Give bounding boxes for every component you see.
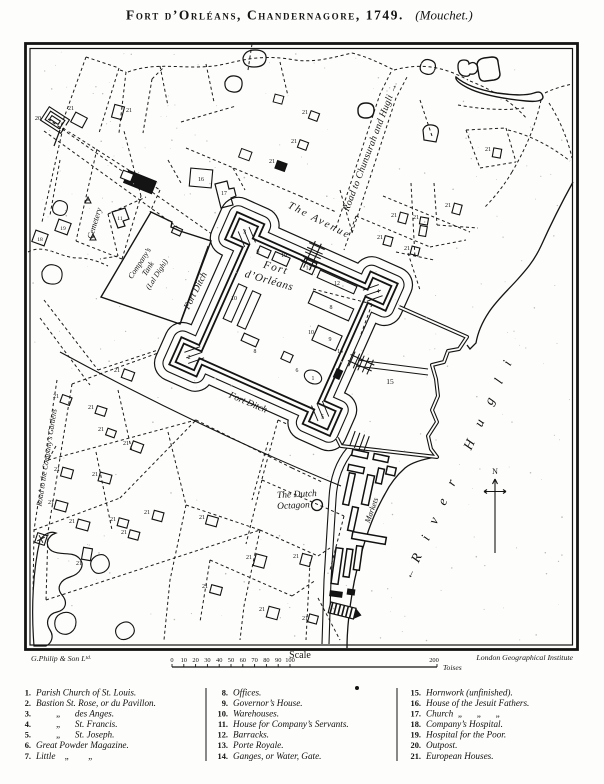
svg-text:21: 21: [246, 555, 252, 561]
svg-text:2: 2: [187, 355, 190, 361]
svg-text:21: 21: [377, 235, 383, 241]
svg-text:Ganges, or Water, Gate.: Ganges, or Water, Gate.: [233, 751, 321, 761]
svg-text:14: 14: [337, 349, 343, 355]
svg-text:European Houses.: European Houses.: [425, 751, 494, 761]
svg-text:G.Philip & Son Ltd.: G.Philip & Son Ltd.: [31, 654, 91, 663]
svg-text:20: 20: [192, 657, 198, 664]
svg-text:80: 80: [263, 657, 269, 664]
svg-text:9: 9: [329, 337, 332, 343]
svg-text:Governor’s House.: Governor’s House.: [233, 698, 303, 708]
svg-text:Great Powder Magazine.: Great Powder Magazine.: [36, 740, 129, 750]
svg-text:(Mouchet.): (Mouchet.): [415, 8, 472, 23]
svg-text:200: 200: [429, 657, 439, 664]
svg-text:15: 15: [386, 377, 394, 386]
svg-text:„ St. Francis.: „ St. Francis.: [56, 719, 118, 729]
svg-text:Toises: Toises: [443, 663, 462, 672]
svg-text:Offices.: Offices.: [233, 688, 261, 698]
svg-text:30: 30: [204, 657, 210, 664]
svg-text:4: 4: [377, 289, 380, 295]
svg-text:N: N: [492, 467, 498, 476]
svg-text:17.: 17.: [411, 710, 421, 719]
svg-text:13: 13: [306, 266, 312, 272]
svg-text:60: 60: [240, 657, 246, 664]
svg-text:1: 1: [312, 376, 315, 382]
svg-text:15.: 15.: [411, 689, 421, 698]
svg-text:20.: 20.: [411, 741, 421, 750]
svg-text:21: 21: [391, 213, 397, 219]
svg-text:12.: 12.: [218, 731, 228, 740]
svg-text:Church „ „ „: Church „ „ „: [426, 709, 501, 719]
svg-text:19.: 19.: [411, 731, 421, 740]
svg-text:21: 21: [269, 159, 275, 165]
svg-text:10: 10: [181, 657, 187, 664]
svg-text:„ St. Joseph.: „ St. Joseph.: [56, 730, 114, 740]
svg-text:House of the Jesuit Fathers.: House of the Jesuit Fathers.: [425, 698, 529, 708]
svg-text:11.: 11.: [218, 720, 228, 729]
svg-text:Company’s Hospital.: Company’s Hospital.: [426, 719, 503, 729]
svg-text:Porte Royale.: Porte Royale.: [232, 740, 284, 750]
svg-text:21: 21: [291, 139, 297, 145]
svg-text:18: 18: [37, 237, 43, 243]
svg-text:21: 21: [445, 203, 451, 209]
svg-text:8: 8: [254, 349, 257, 355]
svg-text:Octagon: Octagon: [277, 500, 310, 512]
svg-text:21: 21: [121, 530, 127, 536]
svg-text:6: 6: [257, 249, 260, 255]
svg-text:16.: 16.: [411, 699, 421, 708]
svg-text:7.: 7.: [25, 752, 31, 761]
svg-text:18.: 18.: [411, 720, 421, 729]
svg-text:100: 100: [285, 657, 295, 664]
svg-text:21: 21: [302, 616, 308, 622]
svg-text:Hospital for the Poor.: Hospital for the Poor.: [425, 730, 506, 740]
svg-text:40: 40: [216, 657, 222, 664]
svg-text:21: 21: [413, 215, 419, 221]
svg-text:90: 90: [275, 657, 281, 664]
svg-text:20: 20: [35, 115, 41, 122]
svg-text:Warehouses.: Warehouses.: [233, 709, 279, 719]
svg-text:13.: 13.: [218, 741, 228, 750]
svg-text:10: 10: [281, 253, 287, 259]
svg-text:2.: 2.: [25, 699, 31, 708]
svg-text:21: 21: [126, 108, 132, 114]
svg-text:9.: 9.: [222, 699, 228, 708]
svg-text:Outpost.: Outpost.: [426, 740, 457, 750]
svg-text:14.: 14.: [218, 752, 228, 761]
svg-text:21: 21: [76, 561, 82, 567]
svg-text:21: 21: [123, 441, 129, 447]
svg-text:12: 12: [334, 281, 340, 287]
svg-text:10: 10: [231, 296, 237, 302]
svg-text:Bastion St. Rose, or du Pavill: Bastion St. Rose, or du Pavillon.: [36, 698, 156, 708]
svg-text:21: 21: [68, 106, 74, 112]
svg-text:21: 21: [48, 500, 54, 506]
svg-text:Parish Church of St. Louis.: Parish Church of St. Louis.: [35, 688, 136, 698]
svg-text:70: 70: [251, 657, 257, 664]
svg-text:„ des Anges.: „ des Anges.: [56, 709, 114, 719]
svg-text:6.: 6.: [25, 741, 31, 750]
svg-text:5.: 5.: [25, 731, 31, 740]
svg-text:21: 21: [88, 405, 94, 411]
svg-text:21: 21: [302, 110, 308, 116]
svg-text:Hornwork (unfinished).: Hornwork (unfinished).: [425, 688, 513, 698]
svg-text:21: 21: [69, 519, 75, 525]
svg-text:50: 50: [228, 657, 234, 664]
svg-text:17: 17: [221, 191, 227, 197]
svg-text:21: 21: [293, 554, 299, 560]
svg-text:1.: 1.: [25, 689, 31, 698]
svg-text:3: 3: [243, 230, 246, 236]
svg-text:3.: 3.: [25, 710, 31, 719]
svg-text:Little „ „: Little „ „: [35, 751, 93, 761]
svg-text:0: 0: [170, 657, 173, 664]
svg-text:21: 21: [92, 472, 98, 478]
svg-text:21: 21: [53, 394, 59, 400]
svg-text:21: 21: [199, 515, 205, 521]
svg-text:21: 21: [114, 368, 120, 374]
svg-text:The Dutch: The Dutch: [277, 489, 318, 501]
svg-text:11: 11: [117, 216, 123, 222]
svg-text:21: 21: [485, 147, 491, 153]
svg-text:Barracks.: Barracks.: [233, 730, 269, 740]
svg-text:10.: 10.: [218, 710, 228, 719]
svg-text:16: 16: [198, 177, 204, 183]
svg-text:21: 21: [110, 517, 116, 523]
svg-text:21: 21: [98, 427, 104, 433]
svg-text:London Geographical Institute: London Geographical Institute: [475, 653, 573, 662]
svg-text:21: 21: [404, 246, 410, 252]
svg-text:5: 5: [321, 414, 324, 420]
svg-text:10: 10: [308, 330, 314, 336]
svg-text:19: 19: [60, 226, 66, 232]
svg-text:6: 6: [296, 368, 299, 374]
svg-text:Fort d’Orléans, Chandernagore,: Fort d’Orléans, Chandernagore, 1749.: [126, 8, 404, 23]
svg-text:House for Company’s Servants.: House for Company’s Servants.: [232, 719, 349, 729]
svg-text:21.: 21.: [411, 752, 421, 761]
svg-text:21: 21: [144, 510, 150, 516]
svg-text:8: 8: [330, 305, 333, 311]
svg-text:8.: 8.: [222, 689, 228, 698]
svg-text:21: 21: [54, 467, 60, 473]
svg-text:21: 21: [259, 607, 265, 613]
svg-text:4.: 4.: [25, 720, 31, 729]
svg-text:21: 21: [202, 584, 208, 590]
